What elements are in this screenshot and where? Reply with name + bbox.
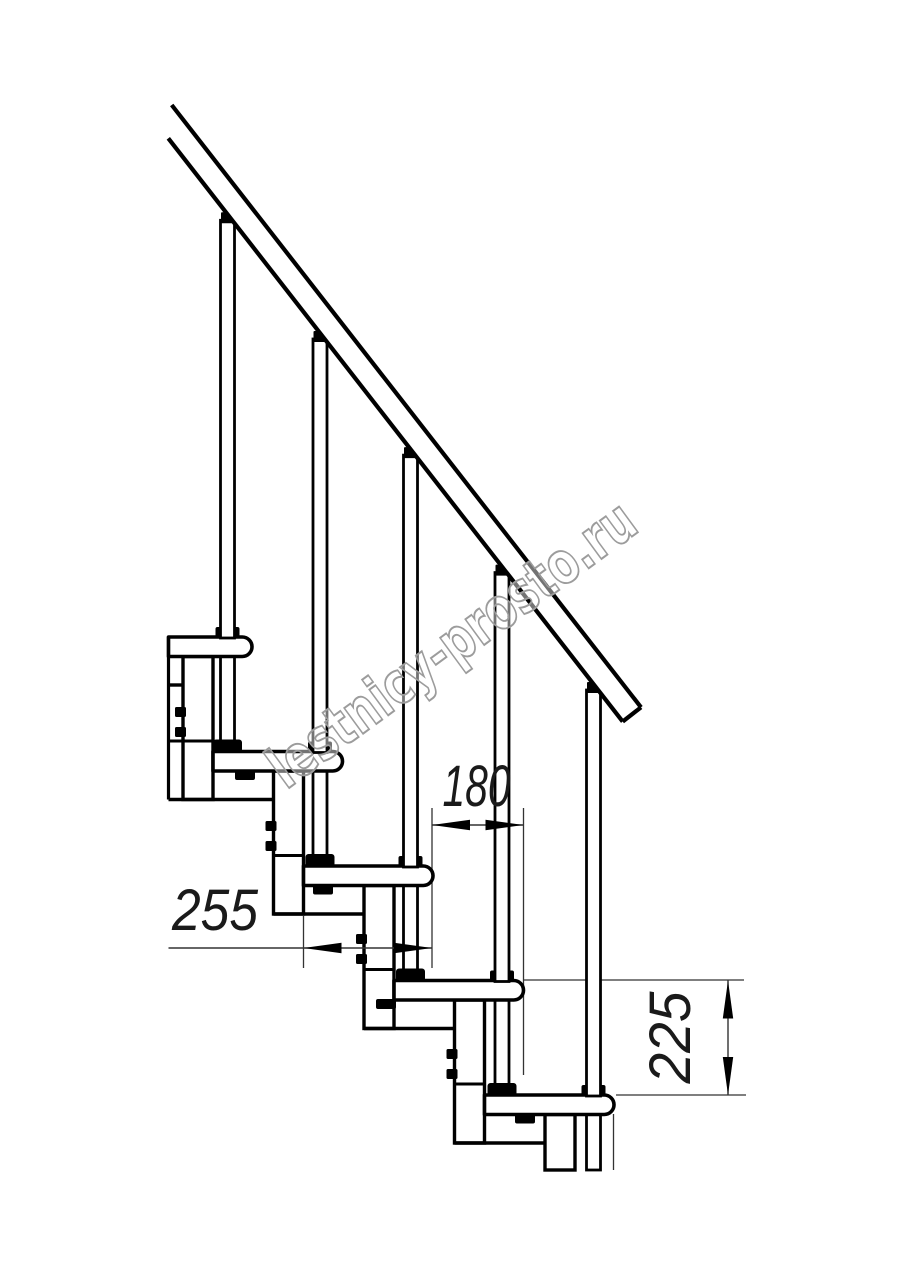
- stair-elevation-svg: 180255225lestnicy-prosto.ru: [0, 0, 914, 1280]
- dimension-label-180: 180: [443, 754, 511, 819]
- support-module-5: [545, 1115, 575, 1171]
- baluster-1: [221, 212, 235, 638]
- tread-4: [394, 981, 524, 1001]
- stair-elevation-figure: 180255225lestnicy-prosto.ru: [0, 0, 914, 1280]
- baluster-5: [587, 682, 601, 1096]
- tread-5: [485, 1095, 615, 1115]
- baluster-2: [313, 331, 327, 753]
- stair-drawing-page: 180255225lestnicy-prosto.ru: [0, 0, 914, 1280]
- dimension-label-255: 255: [171, 878, 259, 943]
- tread-1: [169, 637, 253, 657]
- dimension-label-225: 225: [638, 991, 703, 1085]
- dimension-180: 180: [432, 754, 524, 830]
- tread-3: [304, 866, 434, 886]
